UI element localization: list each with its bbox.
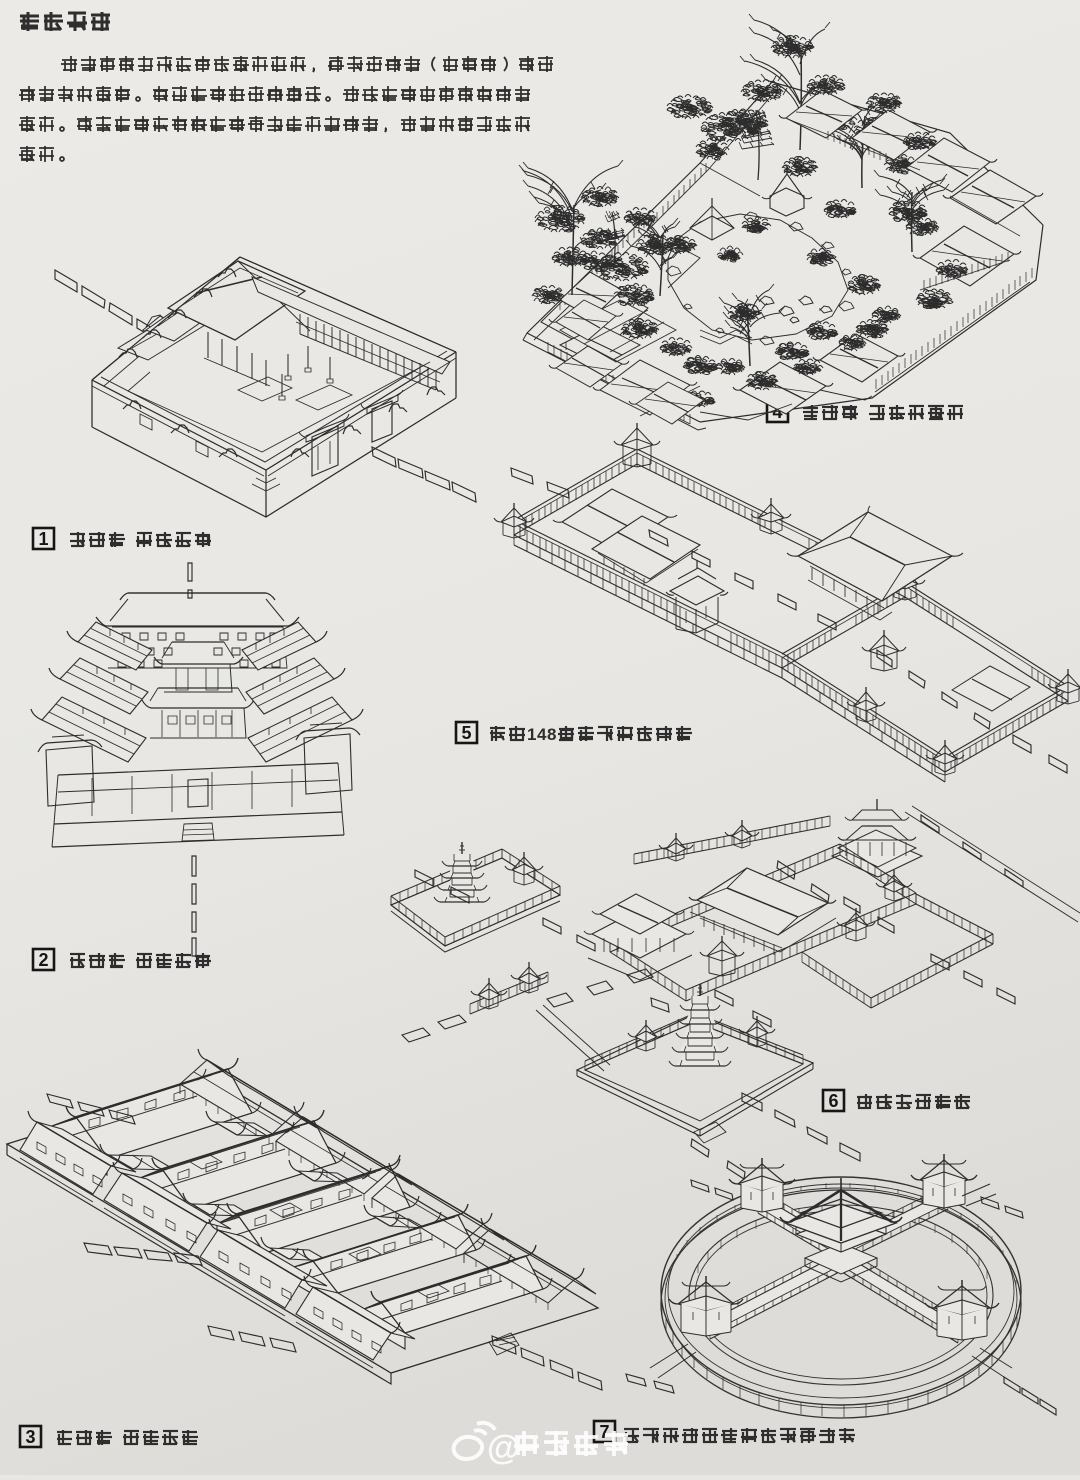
svg-text:4: 4	[537, 725, 547, 744]
svg-text:2: 2	[38, 950, 48, 970]
svg-text:3: 3	[25, 1427, 35, 1447]
svg-text:1: 1	[527, 725, 536, 744]
svg-text:@: @	[487, 1429, 520, 1467]
svg-text:6: 6	[828, 1091, 838, 1111]
svg-text:5: 5	[461, 723, 471, 743]
svg-text:8: 8	[547, 725, 556, 744]
svg-text:1: 1	[38, 529, 48, 549]
svg-text:7: 7	[599, 1422, 609, 1442]
